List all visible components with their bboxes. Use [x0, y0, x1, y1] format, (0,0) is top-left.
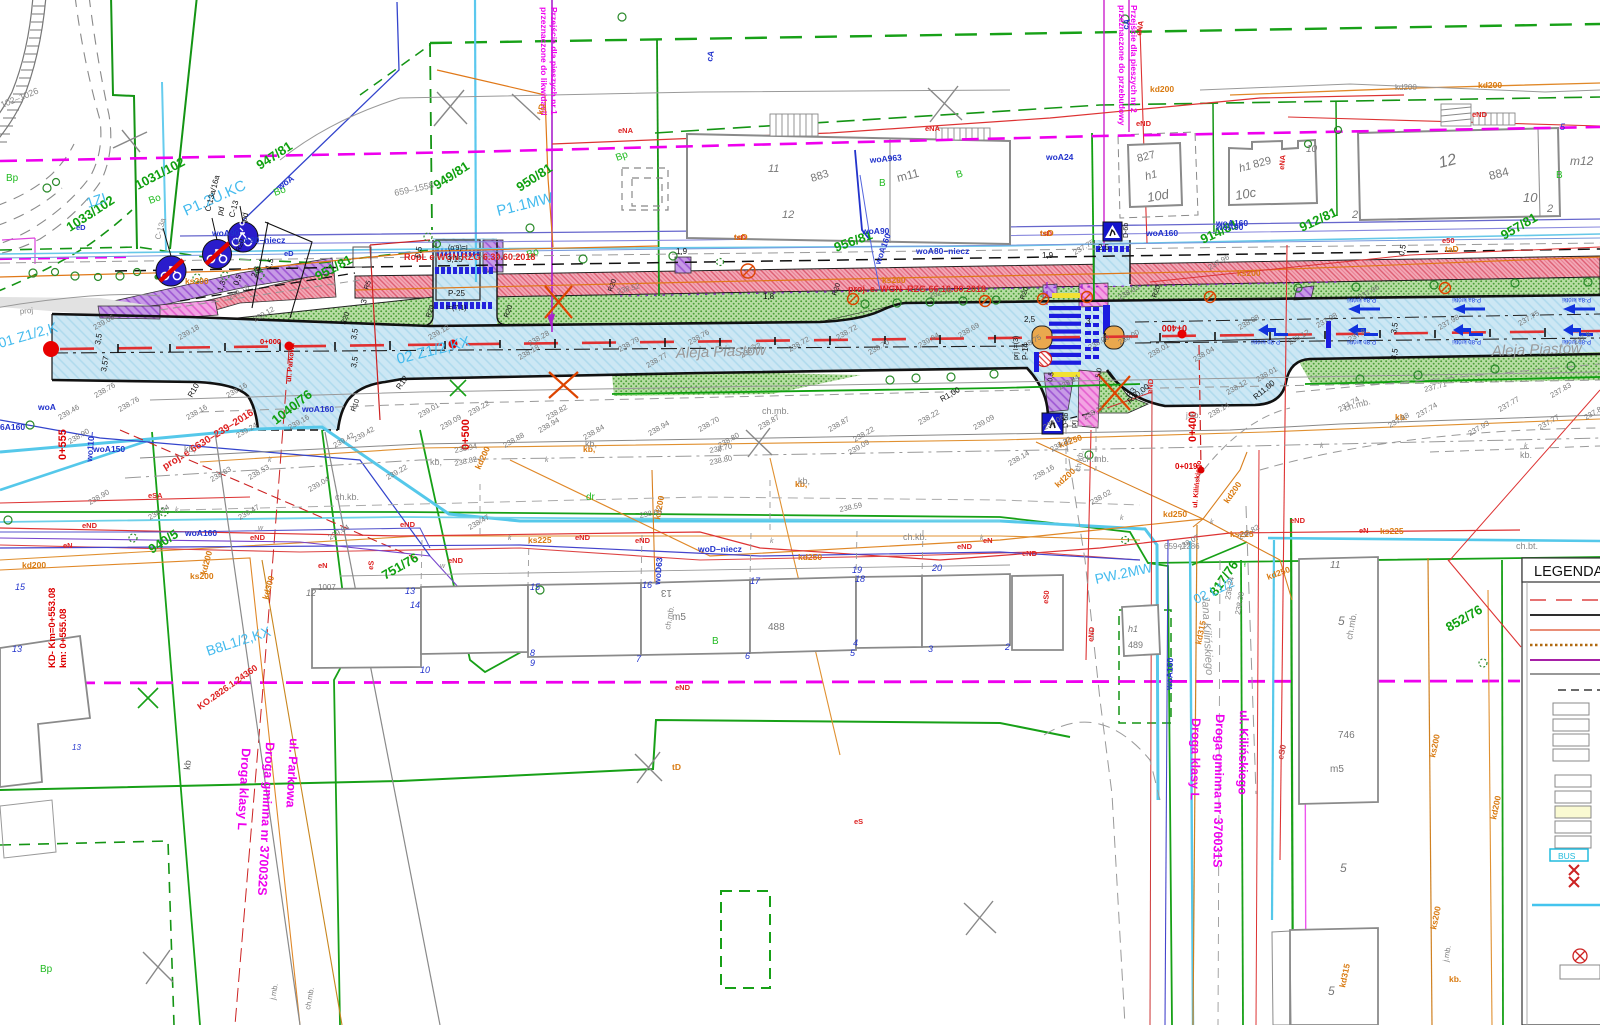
svg-text:4: 4	[853, 638, 858, 648]
svg-text:746: 746	[1338, 730, 1355, 741]
svg-text:B: B	[1556, 170, 1563, 181]
svg-text:eN: eN	[1359, 526, 1369, 535]
svg-text:k: k	[1210, 519, 1214, 526]
svg-text:kd200: kd200	[1395, 83, 1417, 92]
svg-text:k: k	[770, 538, 774, 545]
svg-text:eD: eD	[76, 223, 86, 232]
svg-text:k: k	[718, 447, 722, 454]
svg-text:D-6b: D-6b	[1063, 413, 1070, 428]
svg-text:eNA: eNA	[925, 124, 941, 133]
svg-text:kd250: kd250	[798, 552, 822, 562]
svg-text:eN: eN	[983, 536, 993, 545]
svg-text:3,15: 3,15	[447, 255, 463, 264]
svg-text:16: 16	[642, 580, 652, 590]
svg-text:kb,: kb,	[430, 457, 442, 467]
svg-text:P-14: P-14	[1021, 343, 1030, 360]
svg-text:B: B	[879, 178, 886, 189]
svg-text:2,5: 2,5	[1024, 315, 1036, 324]
svg-text:eND: eND	[957, 542, 973, 551]
svg-text:m12: m12	[1570, 154, 1594, 168]
svg-text:dr: dr	[586, 492, 596, 503]
svg-text:kd200: kd200	[22, 560, 46, 570]
svg-text:woA80–niecz: woA80–niecz	[915, 246, 969, 256]
svg-text:I=(7,1): I=(7,1)	[446, 305, 466, 312]
svg-text:11: 11	[1330, 560, 1340, 571]
svg-text:kd200: kd200	[1478, 80, 1502, 90]
svg-text:woA160: woA160	[1164, 657, 1175, 691]
svg-text:h1: h1	[1128, 624, 1138, 634]
svg-text:eND: eND	[575, 533, 591, 542]
svg-text:ch.kb.: ch.kb.	[903, 532, 927, 542]
svg-text:489: 489	[1128, 640, 1143, 650]
svg-text:10: 10	[1306, 144, 1318, 155]
svg-text:m5: m5	[672, 612, 686, 623]
svg-text:1,9: 1,9	[676, 247, 688, 256]
svg-text:5: 5	[1328, 984, 1335, 998]
svg-text:13: 13	[72, 743, 81, 752]
svg-text:13: 13	[405, 586, 415, 596]
svg-text:10: 10	[1523, 190, 1538, 205]
svg-text:LEGENDA: LEGENDA	[1534, 564, 1600, 580]
svg-text:14: 14	[410, 600, 420, 610]
svg-text:Przejście dla pieszych nr 1: Przejście dla pieszych nr 1	[549, 7, 559, 115]
svg-text:eND: eND	[82, 521, 98, 530]
svg-text:k: k	[980, 535, 984, 542]
svg-text:proj: proj	[19, 306, 33, 316]
svg-text:ks200: ks200	[882, 275, 906, 285]
svg-text:ul. Kilińskiego: ul. Kilińskiego	[1236, 710, 1251, 795]
svg-text:eN: eN	[63, 541, 73, 550]
svg-text:eD: eD	[284, 249, 294, 258]
svg-text:0+000: 0+000	[260, 337, 281, 346]
svg-text:woA150: woA150	[92, 444, 125, 454]
svg-text:D-6b: D-6b	[1123, 223, 1130, 238]
svg-text:ks200: ks200	[185, 276, 209, 286]
svg-text:tsD: tsD	[1040, 228, 1054, 238]
svg-text:eND: eND	[1136, 119, 1152, 128]
svg-text:kb.: kb.	[1449, 974, 1461, 984]
svg-text:woA160: woA160	[184, 528, 217, 538]
svg-text:woA: woA	[37, 402, 56, 412]
svg-text:1007: 1007	[318, 583, 336, 592]
svg-text:prj I=(3): prj I=(3)	[1013, 336, 1020, 360]
svg-text:Aleja Piastów: Aleja Piastów	[1491, 340, 1584, 360]
svg-text:eND: eND	[675, 683, 691, 692]
svg-text:0+019: 0+019	[1175, 462, 1198, 471]
svg-text:kb,: kb,	[184, 444, 196, 454]
svg-text:17: 17	[750, 576, 761, 586]
svg-text:2: 2	[1351, 209, 1358, 221]
svg-text:0+555: 0+555	[57, 429, 69, 460]
svg-text:P-8a krótki: P-8a krótki	[1562, 296, 1591, 302]
svg-text:kb,: kb,	[798, 476, 810, 486]
svg-text:eND: eND	[400, 520, 416, 529]
svg-text:tD: tD	[672, 762, 681, 772]
svg-text:eS: eS	[854, 817, 863, 826]
svg-text:1,9: 1,9	[1042, 251, 1054, 260]
svg-text:0+400: 0+400	[1162, 323, 1187, 333]
svg-text:woA160: woA160	[1215, 218, 1248, 228]
svg-text:ch.mb.: ch.mb.	[1082, 454, 1109, 464]
svg-text:m5: m5	[1330, 764, 1344, 775]
svg-text:woD–niecz: woD–niecz	[697, 544, 742, 554]
svg-text:19: 19	[852, 565, 862, 575]
svg-text:proj. e. WGN–RZG 66.10.80.2018: proj. e. WGN–RZG 66.10.80.2018	[848, 284, 986, 294]
svg-text:eND: eND	[1086, 626, 1096, 642]
svg-text:kb: kb	[182, 760, 193, 770]
svg-text:1,8: 1,8	[763, 292, 775, 301]
svg-text:k: k	[545, 457, 549, 464]
svg-text:tsD: tsD	[734, 232, 748, 242]
svg-text:eND: eND	[1022, 549, 1038, 558]
svg-text:KD- Km=0+553.08: KD- Km=0+553.08	[47, 588, 58, 668]
svg-text:15: 15	[530, 582, 541, 592]
svg-text:5: 5	[1338, 614, 1345, 628]
svg-text:6A160: 6A160	[0, 422, 25, 432]
svg-text:eND: eND	[635, 536, 651, 545]
svg-text:cA: cA	[704, 50, 716, 62]
svg-text:ks225: ks225	[1380, 526, 1404, 536]
svg-text:18: 18	[855, 574, 865, 584]
svg-text:ch.bt.: ch.bt.	[1516, 541, 1538, 551]
svg-text:kd250: kd250	[1163, 509, 1187, 519]
svg-text:Droga gminna nr 370031S: Droga gminna nr 370031S	[1210, 714, 1227, 868]
svg-text:eND: eND	[448, 556, 464, 565]
svg-text:woA160: woA160	[1145, 228, 1178, 238]
svg-text:k: k	[268, 457, 272, 464]
svg-text:eNA: eNA	[618, 126, 634, 135]
svg-text:eND: eND	[1290, 516, 1306, 525]
svg-text:9: 9	[530, 658, 535, 668]
svg-text:eS: eS	[366, 560, 376, 570]
svg-text:15: 15	[15, 582, 26, 592]
svg-text:12: 12	[306, 588, 316, 598]
svg-text:P-8a krótki: P-8a krótki	[1452, 296, 1481, 302]
svg-text:BUS: BUS	[1558, 851, 1576, 861]
svg-text:P-8b krótki: P-8b krótki	[1452, 338, 1481, 344]
svg-text:k: k	[1120, 515, 1124, 522]
svg-text:ks225: ks225	[528, 535, 552, 545]
svg-text:5: 5	[1340, 861, 1347, 875]
svg-text:taD: taD	[1445, 244, 1459, 254]
svg-text:km: 0+555.08: km: 0+555.08	[58, 609, 69, 668]
svg-text:k: k	[1524, 443, 1528, 450]
svg-text:2: 2	[1004, 642, 1010, 652]
svg-text:Bp: Bp	[40, 964, 53, 975]
svg-text:P-8b krótki: P-8b krótki	[1251, 338, 1280, 344]
svg-text:10: 10	[420, 665, 430, 675]
svg-text:6: 6	[745, 651, 750, 661]
svg-text:8: 8	[530, 648, 535, 658]
svg-text:13: 13	[660, 587, 672, 598]
svg-text:20: 20	[931, 563, 942, 573]
svg-text:RopL e WGN RZG 6.30.60.2018: RopL e WGN RZG 6.30.60.2018	[404, 252, 535, 262]
svg-text:(o'9)=I: (o'9)=I	[448, 245, 468, 252]
svg-text:P-25: P-25	[448, 289, 465, 298]
svg-text:eSA: eSA	[148, 491, 163, 500]
svg-text:B: B	[712, 636, 719, 647]
svg-text:eN: eN	[318, 561, 328, 570]
svg-text:Bp: Bp	[6, 173, 19, 184]
svg-text:2: 2	[1546, 203, 1553, 215]
svg-text:eS0: eS0	[1041, 590, 1051, 604]
svg-text:Aleja Piastów: Aleja Piastów	[675, 342, 768, 362]
svg-text:kd200: kd200	[1150, 84, 1174, 94]
svg-text:k: k	[508, 535, 512, 542]
svg-text:3: 3	[928, 644, 933, 654]
svg-text:ks200: ks200	[1237, 268, 1261, 278]
svg-text:ł ł: ł ł	[1240, 560, 1246, 569]
svg-text:ch.kb.: ch.kb.	[335, 492, 359, 502]
svg-text:2,5: 2,5	[1098, 243, 1110, 252]
svg-text:przeznaczone do likwidacji: przeznaczone do likwidacji	[539, 7, 549, 116]
svg-text:13: 13	[12, 644, 22, 654]
svg-text:prj: prj	[1071, 420, 1078, 428]
svg-text:12: 12	[782, 209, 794, 221]
svg-text:cA: cA	[1120, 18, 1132, 30]
svg-text:eND: eND	[1472, 110, 1488, 119]
svg-text:k: k	[1320, 443, 1324, 450]
svg-text:11: 11	[768, 163, 779, 175]
svg-text:488: 488	[768, 622, 785, 633]
svg-text:eNA: eNA	[1277, 154, 1287, 170]
svg-text:kD: kD	[535, 103, 547, 115]
svg-text:j.kb.: j.kb.	[1185, 411, 1201, 420]
svg-text:woA24: woA24	[1045, 152, 1074, 162]
svg-text:k: k	[175, 507, 179, 514]
svg-text:eND: eND	[250, 533, 266, 542]
svg-text:kb.: kb.	[1520, 450, 1532, 460]
svg-text:Droga klasy L: Droga klasy L	[1188, 718, 1203, 801]
svg-text:3: 3	[1086, 317, 1091, 326]
